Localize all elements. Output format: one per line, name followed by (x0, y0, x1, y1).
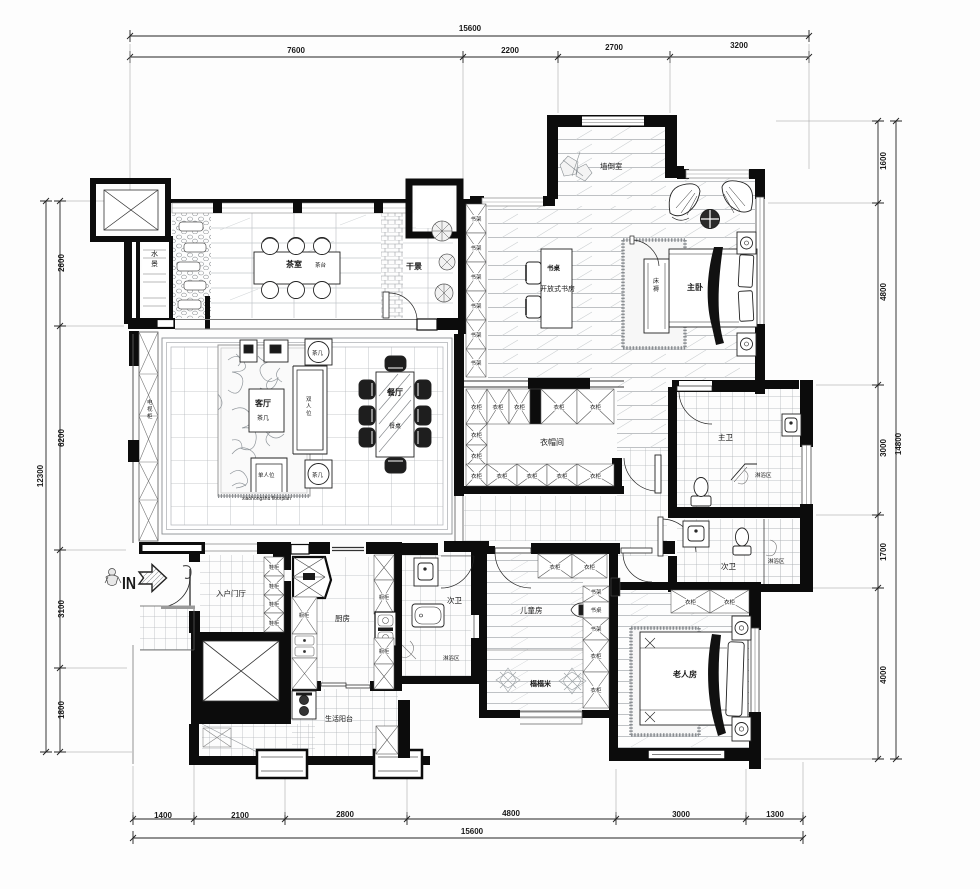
svg-text:xiaohongshu floorplan: xiaohongshu floorplan (242, 496, 291, 502)
svg-text:衣柜: 衣柜 (590, 686, 602, 694)
svg-text:次卫: 次卫 (721, 561, 736, 571)
svg-text:褥: 褥 (653, 285, 659, 293)
svg-text:书架: 书架 (470, 215, 482, 223)
svg-text:衣柜: 衣柜 (496, 472, 508, 480)
svg-text:餐厅: 餐厅 (386, 387, 403, 397)
svg-text:生活阳台: 生活阳台 (325, 714, 353, 723)
svg-text:书架: 书架 (590, 588, 602, 596)
svg-text:衣柜: 衣柜 (471, 431, 483, 439)
svg-text:4800: 4800 (502, 809, 520, 818)
svg-text:15600: 15600 (461, 827, 484, 836)
svg-text:2600: 2600 (57, 254, 66, 272)
svg-text:2700: 2700 (605, 43, 623, 52)
svg-text:人: 人 (306, 403, 312, 410)
svg-text:厨房: 厨房 (335, 613, 350, 623)
svg-text:1800: 1800 (57, 701, 66, 719)
svg-text:双: 双 (306, 396, 312, 403)
svg-text:鞋柜: 鞋柜 (269, 564, 279, 571)
svg-text:衣柜: 衣柜 (471, 472, 483, 480)
svg-text:橱柜: 橱柜 (379, 594, 389, 601)
svg-text:书架: 书架 (590, 625, 602, 633)
svg-text:4000: 4000 (879, 666, 888, 684)
svg-text:景: 景 (151, 260, 158, 268)
svg-text:衣柜: 衣柜 (526, 472, 538, 480)
svg-text:书架: 书架 (470, 273, 482, 281)
svg-text:衣柜: 衣柜 (553, 403, 565, 411)
svg-text:橱柜: 橱柜 (379, 648, 389, 655)
svg-text:衣柜: 衣柜 (514, 403, 526, 411)
svg-text:电: 电 (147, 398, 153, 406)
svg-text:视: 视 (147, 405, 153, 413)
svg-text:书桌: 书桌 (590, 606, 602, 614)
svg-text:衣柜: 衣柜 (724, 598, 736, 606)
svg-text:2100: 2100 (231, 811, 249, 820)
svg-text:单人位: 单人位 (258, 471, 275, 479)
svg-text:6200: 6200 (57, 429, 66, 447)
svg-text:主卫: 主卫 (718, 432, 733, 442)
svg-text:鞋柜: 鞋柜 (269, 601, 279, 608)
svg-text:老人房: 老人房 (672, 669, 697, 679)
svg-text:茶台: 茶台 (315, 261, 327, 269)
svg-text:儿童房: 儿童房 (520, 605, 543, 615)
svg-text:衣柜: 衣柜 (590, 652, 602, 660)
svg-text:客厅: 客厅 (254, 398, 271, 408)
svg-text:淋浴区: 淋浴区 (443, 654, 460, 662)
svg-text:入户门厅: 入户门厅 (216, 588, 246, 598)
svg-text:橱柜: 橱柜 (299, 612, 309, 619)
svg-text:餐桌: 餐桌 (389, 422, 401, 430)
svg-text:鞋柜: 鞋柜 (269, 583, 279, 590)
svg-text:鞋柜: 鞋柜 (269, 620, 279, 627)
svg-text:1600: 1600 (879, 152, 888, 170)
svg-text:2800: 2800 (336, 810, 354, 819)
svg-text:1300: 1300 (766, 810, 784, 819)
svg-text:衣帽间: 衣帽间 (540, 437, 564, 447)
svg-text:淋浴区: 淋浴区 (755, 471, 772, 479)
svg-text:榻榻米: 榻榻米 (529, 679, 552, 688)
svg-text:2200: 2200 (501, 46, 519, 55)
svg-text:水: 水 (151, 249, 158, 258)
svg-text:衣柜: 衣柜 (471, 452, 483, 460)
svg-text:7600: 7600 (287, 46, 305, 55)
svg-text:1700: 1700 (879, 543, 888, 561)
svg-text:墙倒室: 墙倒室 (600, 161, 623, 171)
svg-text:衣柜: 衣柜 (590, 472, 602, 480)
svg-text:茶几: 茶几 (257, 414, 269, 422)
svg-text:衣柜: 衣柜 (556, 472, 568, 480)
svg-text:衣柜: 衣柜 (471, 403, 483, 411)
svg-text:床: 床 (653, 277, 659, 285)
svg-text:12300: 12300 (36, 464, 45, 487)
svg-text:14800: 14800 (894, 432, 903, 455)
svg-text:1400: 1400 (154, 811, 172, 820)
svg-text:茶几: 茶几 (312, 471, 324, 479)
svg-text:书架: 书架 (470, 331, 482, 339)
svg-text:次卫: 次卫 (447, 595, 462, 605)
svg-text:衣柜: 衣柜 (549, 563, 561, 571)
svg-text:3200: 3200 (730, 41, 748, 50)
svg-text:淋浴区: 淋浴区 (768, 557, 785, 565)
svg-text:柜: 柜 (147, 412, 153, 420)
svg-text:衣柜: 衣柜 (584, 563, 596, 571)
svg-text:15600: 15600 (459, 24, 482, 33)
svg-text:书桌: 书桌 (547, 263, 561, 272)
svg-text:4800: 4800 (879, 283, 888, 301)
svg-text:干景: 干景 (406, 261, 422, 271)
svg-text:3000: 3000 (672, 810, 690, 819)
svg-text:书架: 书架 (470, 302, 482, 310)
svg-text:茶几: 茶几 (312, 349, 324, 357)
svg-text:衣柜: 衣柜 (492, 403, 504, 411)
svg-text:衣柜: 衣柜 (590, 403, 602, 411)
svg-text:衣柜: 衣柜 (685, 598, 697, 606)
svg-text:主卧: 主卧 (687, 282, 703, 292)
svg-text:3000: 3000 (879, 439, 888, 457)
svg-text:3100: 3100 (57, 600, 66, 618)
svg-text:IN: IN (122, 573, 136, 593)
svg-text:书架: 书架 (470, 359, 482, 367)
svg-text:书架: 书架 (470, 244, 482, 252)
svg-text:茶室: 茶室 (285, 259, 302, 269)
svg-text:开放式书房: 开放式书房 (540, 284, 575, 293)
svg-text:位: 位 (306, 409, 312, 417)
